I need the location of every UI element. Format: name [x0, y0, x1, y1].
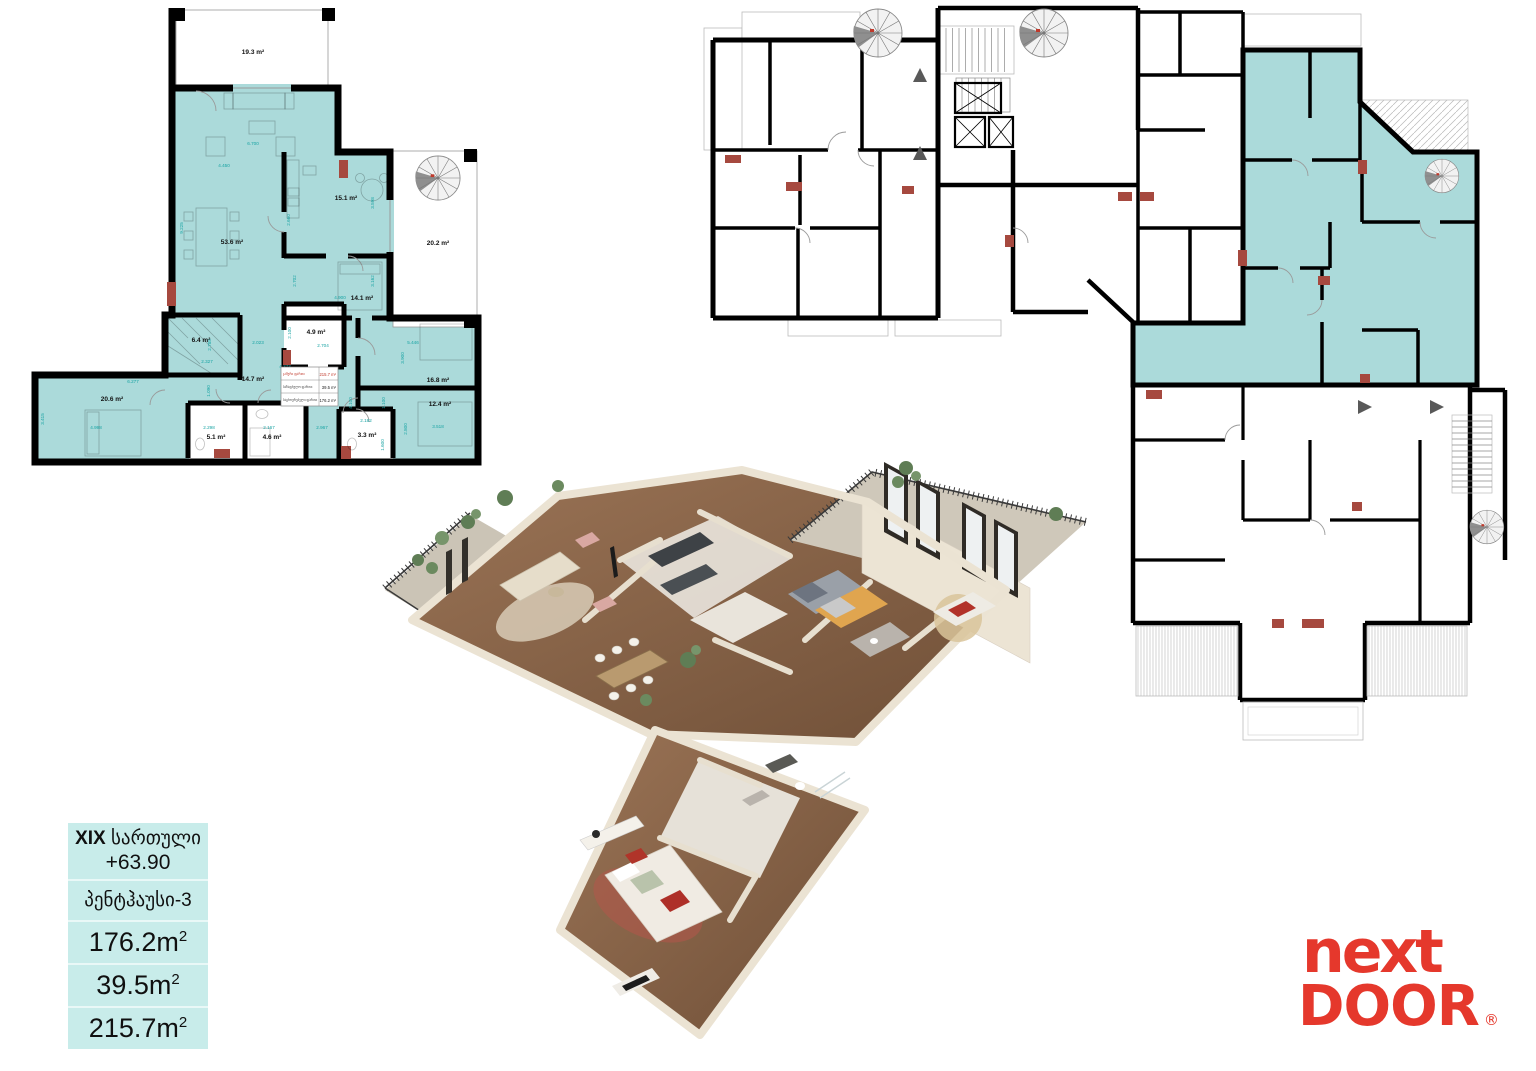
dim: 4.100 [348, 397, 353, 409]
dim: 3.518 [432, 424, 444, 429]
dim: 1.600 [380, 439, 385, 451]
area-sup: 2 [179, 928, 187, 945]
summary-label: საცხოვრებელი ფართი [283, 398, 318, 402]
floor-row: XIX სართული +63.90 [68, 823, 208, 881]
dim: 1.090 [206, 385, 211, 397]
room-label: 5.1 m² [207, 434, 227, 441]
registered-mark: ® [1484, 1011, 1498, 1029]
left-block-walls [713, 40, 938, 318]
spiral-stair-icon [1470, 510, 1504, 544]
dim: 2.167 [263, 425, 275, 430]
summary-value: 176.2 m² [319, 398, 336, 403]
area-value: 39.5m [96, 970, 171, 1000]
dim: 3.598 [370, 197, 375, 209]
logo-word: DOOR [1298, 974, 1479, 1039]
floorplan-sheet: 19.3 m² 53.6 m² 15.1 m² 20.2 m² 14.1 m² … [0, 0, 1536, 1071]
area-summary-table: ჯამური ფართი 215.7 m² საზაფხულო ფართი 39… [281, 367, 338, 406]
dim: 3.415 [40, 413, 45, 425]
dim: 3.900 [400, 352, 405, 364]
spiral-stair-icon [853, 9, 902, 57]
dim: 2.327 [201, 359, 213, 364]
dim: 9.225 [179, 222, 184, 234]
dim: 2.298 [203, 425, 215, 430]
dim: 2.704 [317, 343, 329, 348]
area-sup: 2 [179, 1014, 187, 1031]
elevators [955, 83, 1013, 147]
elevation: +63.90 [70, 851, 206, 875]
room-label: 20.2 m² [427, 240, 450, 247]
plans-artwork: 19.3 m² 53.6 m² 15.1 m² 20.2 m² 14.1 m² … [0, 0, 1536, 1071]
area-value: 215.7m [89, 1013, 179, 1043]
dim: 2.100 [287, 327, 292, 339]
area-balcony: 39.5m2 [68, 965, 208, 1008]
dim: 2.967 [316, 425, 328, 430]
unit-name: პენტჰაუსი-3 [68, 881, 208, 922]
room-label: 16.8 m² [427, 377, 450, 384]
dim: 2.660 [286, 214, 291, 226]
room-label: 4.6 m² [263, 434, 283, 441]
dim: 2.023 [252, 340, 264, 345]
summary-value: 215.7 m² [319, 372, 336, 377]
dim: 4.998 [90, 425, 102, 430]
dim: 6.700 [247, 141, 259, 146]
unit-info-panel: XIX სართული +63.90 პენტჰაუსი-3 176.2m2 3… [68, 823, 208, 1049]
area-value: 176.2m [89, 927, 179, 957]
area-total: 215.7m2 [68, 1008, 208, 1049]
dim: 4.900 [334, 295, 346, 300]
neighbor-walls-top [1138, 12, 1243, 322]
nextdoor-logo: next DOOR® [1298, 925, 1498, 1033]
unit-floor-plan: 19.3 m² 53.6 m² 15.1 m² 20.2 m² 14.1 m² … [35, 8, 478, 462]
room-label: 14.1 m² [351, 295, 374, 302]
floor-word: სართული [111, 828, 201, 849]
summary-value: 39.5 m² [322, 385, 337, 390]
room-label: 53.6 m² [221, 239, 244, 246]
coffee-table [548, 587, 564, 597]
summary-label: საზაფხულო ფართი [283, 385, 313, 389]
render-3d [385, 461, 1086, 1035]
logo-line-1: next [1302, 925, 1498, 981]
dim: 2.702 [292, 275, 297, 287]
room-label: 19.3 m² [242, 49, 265, 56]
spiral-stair-icon [1425, 159, 1459, 193]
dim: 5.446 [407, 340, 419, 345]
room-label: 20.6 m² [101, 396, 124, 403]
spiral-stair-icon [1019, 9, 1068, 57]
logo-line-2: DOOR® [1298, 981, 1498, 1033]
dim: 4.450 [218, 163, 230, 168]
room-label: 4.9 m² [307, 329, 327, 336]
dim: 2.182 [360, 418, 372, 423]
dim: 2.800 [403, 423, 408, 435]
area-internal: 176.2m2 [68, 922, 208, 965]
room-label: 3.3 m² [358, 432, 378, 439]
bottom-unit-walls [1133, 385, 1420, 623]
balconies [1136, 626, 1467, 740]
room-label: 15.1 m² [335, 195, 358, 202]
area-sup: 2 [171, 971, 179, 988]
dim: 1.100 [381, 397, 386, 409]
dim: 2.785 [207, 339, 212, 351]
room-label: 12.4 m² [429, 401, 452, 408]
spiral-stair-icon [415, 156, 460, 200]
dim: 6.277 [127, 379, 139, 384]
summary-label: ჯამური ფართი [283, 372, 305, 376]
floor-number: XIX [75, 828, 106, 849]
room-label: 14.7 m² [242, 376, 265, 383]
dim: 3.162 [370, 275, 375, 287]
